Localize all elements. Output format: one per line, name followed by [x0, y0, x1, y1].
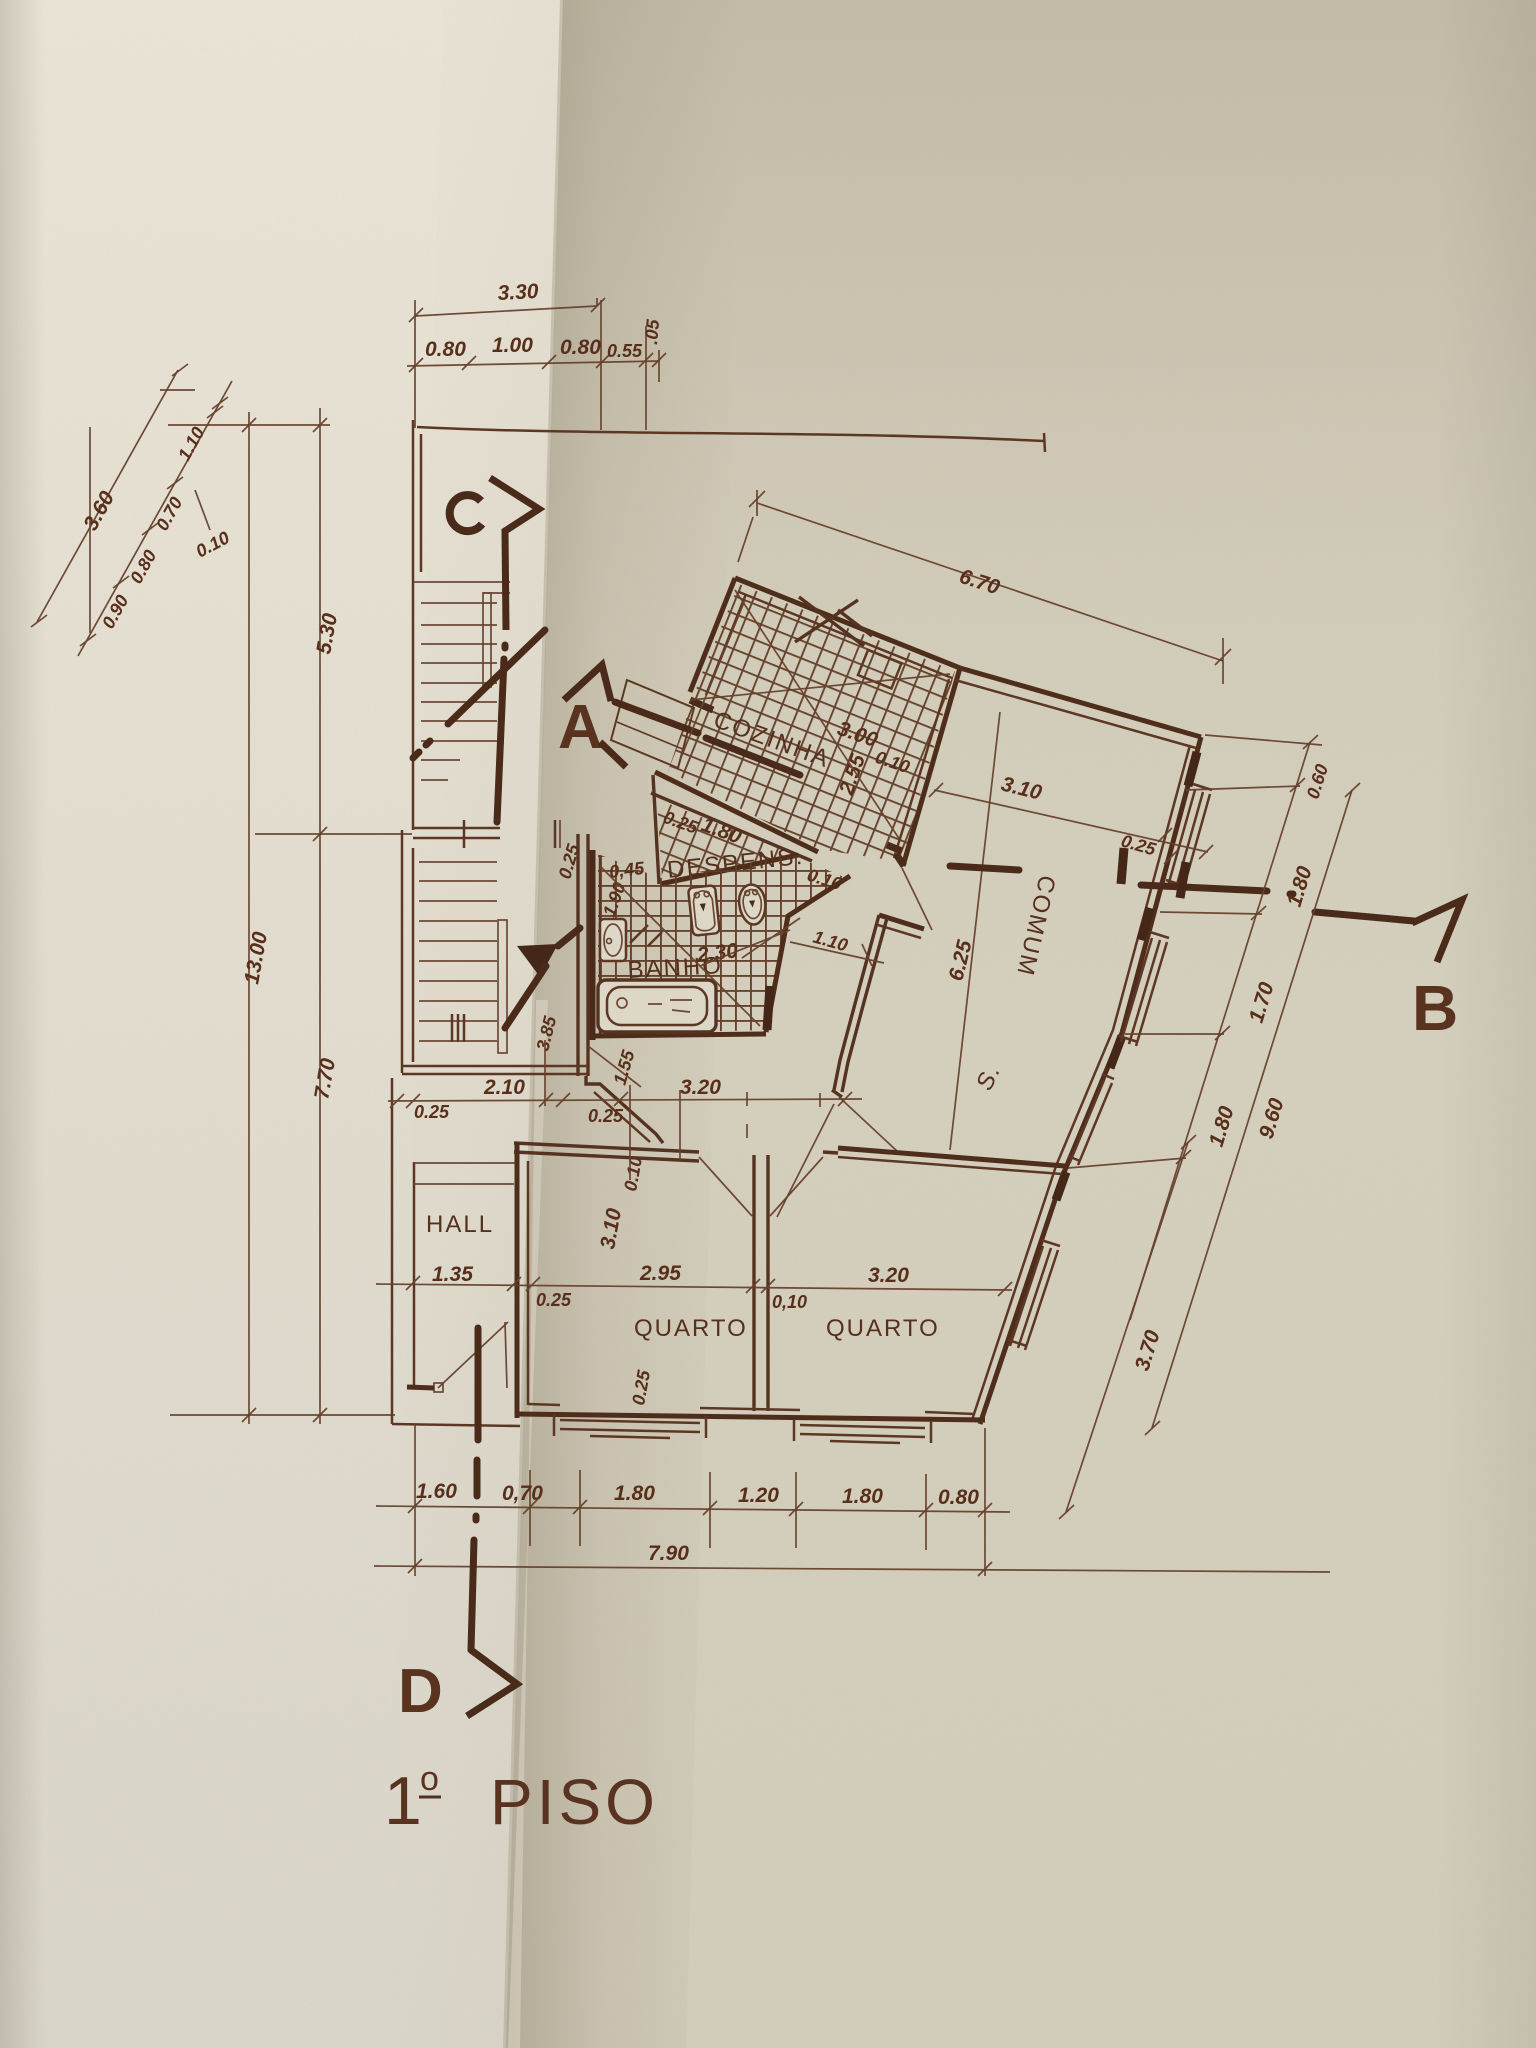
svg-text:1.35: 1.35: [432, 1263, 473, 1286]
svg-text:PISO: PISO: [490, 1766, 659, 1838]
svg-text:0.80: 0.80: [425, 338, 466, 361]
svg-text:0,10: 0,10: [772, 1292, 807, 1312]
svg-text:1.60: 1.60: [416, 1480, 457, 1503]
svg-text:0.80: 0.80: [560, 336, 601, 359]
svg-text:0.25: 0.25: [588, 1106, 624, 1126]
svg-text:2.95: 2.95: [639, 1262, 681, 1285]
svg-text:3.20: 3.20: [868, 1264, 909, 1287]
svg-text:3.20: 3.20: [680, 1076, 721, 1099]
svg-text:0.55: 0.55: [607, 341, 643, 361]
svg-text:3.30: 3.30: [497, 280, 539, 305]
svg-text:0.25: 0.25: [414, 1102, 450, 1122]
svg-text:.05: .05: [641, 318, 663, 346]
svg-text:0.80: 0.80: [938, 1486, 979, 1509]
svg-text:D: D: [398, 1657, 443, 1726]
svg-text:0,70: 0,70: [502, 1482, 543, 1505]
svg-text:QUARTO: QUARTO: [826, 1315, 940, 1342]
svg-text:B: B: [1412, 972, 1458, 1044]
svg-text:1.20: 1.20: [738, 1484, 779, 1507]
svg-text:1.00: 1.00: [492, 334, 533, 357]
svg-text:o: o: [420, 1760, 439, 1798]
svg-text:1.80: 1.80: [614, 1482, 655, 1505]
svg-text:HALL: HALL: [426, 1211, 494, 1238]
svg-text:A: A: [558, 693, 603, 762]
svg-text:7.90: 7.90: [648, 1542, 689, 1565]
svg-text:2.10: 2.10: [483, 1076, 525, 1099]
svg-text:1.80: 1.80: [842, 1485, 883, 1508]
svg-text:0.25: 0.25: [536, 1290, 572, 1310]
svg-text:QUARTO: QUARTO: [634, 1315, 748, 1342]
